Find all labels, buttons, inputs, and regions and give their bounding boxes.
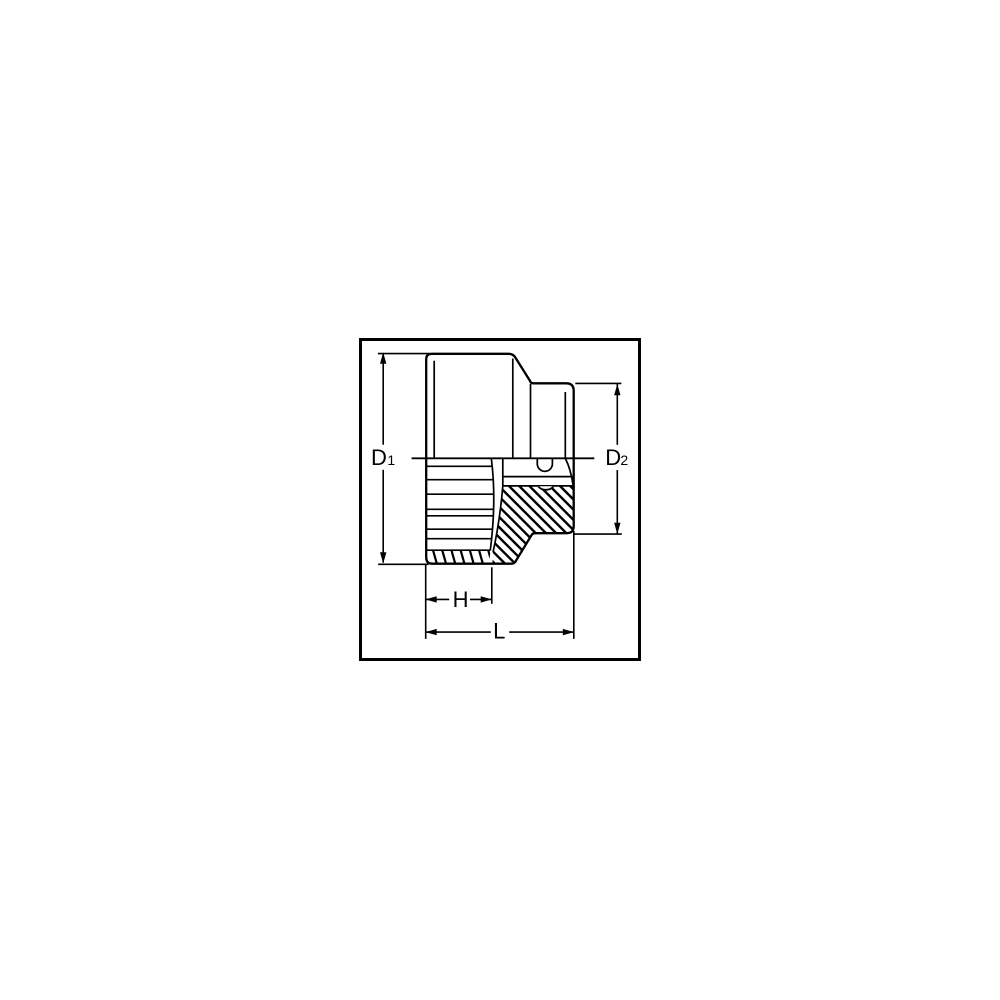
svg-text:D: D [605,445,621,470]
svg-text:1: 1 [387,452,395,468]
svg-text:D: D [371,445,387,470]
svg-text:H: H [453,587,469,612]
svg-text:2: 2 [620,452,628,468]
svg-text:L: L [493,619,505,644]
